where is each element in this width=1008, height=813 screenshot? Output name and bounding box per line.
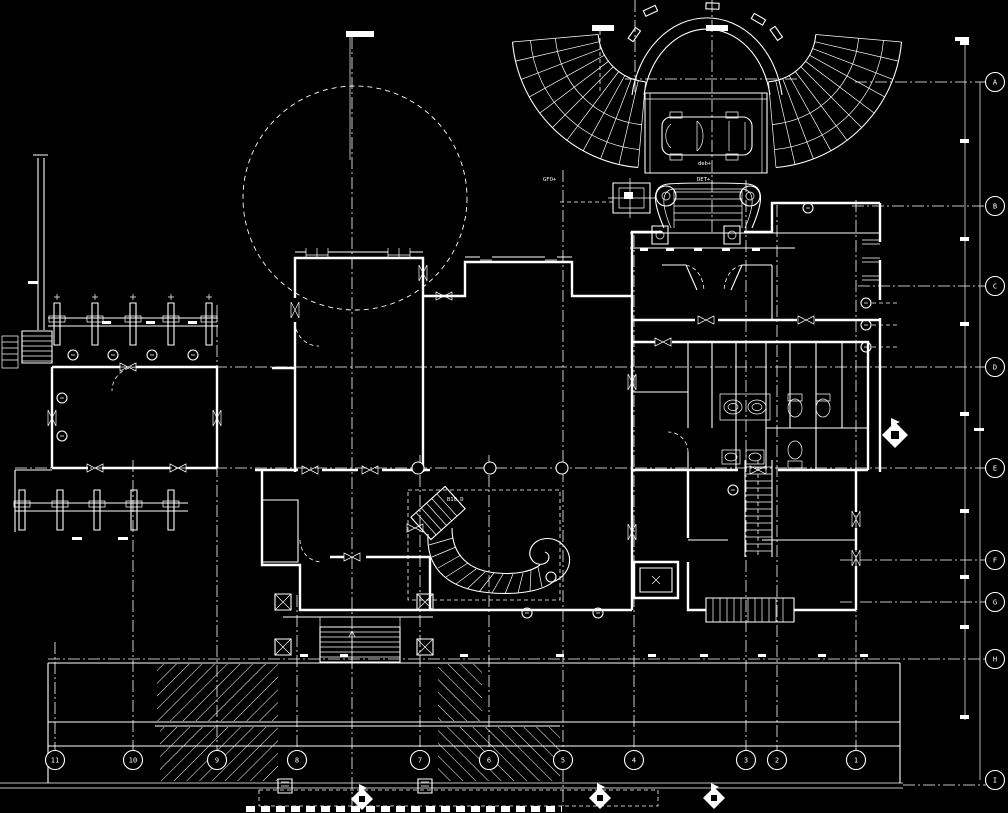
grid-bubble-column-9: 9	[208, 751, 227, 770]
car-body	[662, 117, 752, 155]
grid-bubble-label: D	[993, 364, 997, 372]
cad-floor-plan-canvas: 1110987654321 ABCDEFGHI GFO+deb+DET+B10 …	[0, 0, 1008, 813]
curved-stair	[428, 528, 570, 594]
grid-bubble-label: 1	[854, 757, 858, 765]
grid-bubble-column-11: 11	[46, 751, 65, 770]
south-east-stair	[706, 598, 794, 622]
bath-block-north	[632, 342, 868, 470]
portico-column	[652, 226, 668, 244]
grid-bubble-label: 5	[561, 757, 565, 765]
flag-mark	[706, 25, 728, 31]
south-terrace	[48, 594, 900, 809]
spot-elevation-label: deb+	[698, 161, 712, 167]
grid-bubble-label: C	[993, 283, 997, 291]
grid-bubble-label: 11	[51, 757, 59, 765]
dome-inner-arc	[644, 29, 770, 95]
grid-bubble-column-1: 1	[847, 751, 866, 770]
flag-mark	[346, 31, 374, 37]
pergola-columns-north	[49, 294, 217, 345]
grid-bubble-label: 6	[487, 757, 491, 765]
door-swing	[112, 367, 136, 391]
grid-bubble-label: G	[993, 599, 997, 607]
terrace-hatch	[438, 664, 482, 721]
grid-bubble-column-2: 2	[768, 751, 787, 770]
dome-post	[628, 28, 640, 42]
grid-bubble-label: I	[993, 777, 997, 785]
grid-bubble-row-F: F	[986, 551, 1005, 570]
bath-partitions	[688, 342, 842, 470]
flag-mark	[592, 25, 614, 31]
grid-bubble-row-B: B	[986, 197, 1005, 216]
dome-post	[706, 3, 719, 9]
bay-walls	[423, 262, 632, 296]
tree-canopy	[243, 86, 467, 310]
grid-intersection-circle	[556, 462, 568, 474]
grid-bubble-label: 4	[632, 757, 636, 765]
spot-labels: GFO+deb+DET+B10 D	[447, 161, 712, 503]
sink-basin	[748, 400, 766, 414]
dome-post	[643, 5, 657, 16]
planter-pad	[560, 178, 655, 218]
garden-wall	[33, 155, 48, 330]
grid-lines	[0, 0, 986, 806]
entry-double-door	[662, 265, 772, 290]
grid-intersection-circle	[484, 462, 496, 474]
elevator-shaft	[634, 562, 678, 598]
east-wall-ticks	[862, 240, 880, 280]
section-marker-diamond	[589, 783, 611, 809]
left-pergola	[2, 155, 218, 532]
grid-bubble-row-A: A	[986, 73, 1005, 92]
terrace-hatch	[438, 727, 560, 781]
grid-bubble-label: F	[993, 557, 997, 565]
entry-portico	[630, 183, 795, 248]
straight-flight	[411, 486, 465, 539]
grid-bubble-label: 7	[418, 757, 422, 765]
side-ladder	[2, 336, 18, 368]
dome-post	[751, 13, 765, 25]
keynote-markers	[57, 203, 900, 618]
grid-intersection-circle	[412, 462, 424, 474]
fan-stair-right	[769, 35, 902, 168]
grid-bubble-row-H: H	[986, 650, 1005, 669]
floor-plan-drawing: 1110987654321 ABCDEFGHI GFO+deb+DET+B10 …	[0, 0, 1008, 813]
grid-bubble-row-E: E	[986, 459, 1005, 478]
grid-bubble-label: E	[993, 465, 997, 473]
grid-bubble-column-7: 7	[411, 751, 430, 770]
grid-bubble-row-D: D	[986, 358, 1005, 377]
dome-post	[770, 26, 782, 40]
car-glass-lines	[666, 121, 745, 151]
grid-bubble-column-3: 3	[737, 751, 756, 770]
hatched-closet	[262, 500, 298, 562]
grid-bubble-row-I: I	[986, 771, 1005, 790]
sw-rooms-shell	[255, 470, 430, 610]
toilet	[788, 441, 802, 459]
section-marker-diamond	[882, 418, 908, 448]
grid-bubble-column-6: 6	[480, 751, 499, 770]
opening-symbols	[48, 265, 860, 566]
dimension-marks	[28, 37, 984, 719]
bath-partitions-h	[632, 392, 868, 428]
east-wing-shell	[632, 203, 880, 610]
spot-elevation-label: GFO+	[543, 177, 557, 183]
grid-bubble-row-G: G	[986, 593, 1005, 612]
grid-bubble-label: B	[993, 203, 997, 211]
grid-bubble-row-C: C	[986, 277, 1005, 296]
spot-elevation-label: DET+	[697, 177, 711, 183]
porch-columns	[275, 594, 433, 655]
grid-bubble-label: 9	[215, 757, 219, 765]
volute-rail	[530, 539, 570, 582]
tree-canopy-circle	[243, 86, 467, 310]
spot-elevation-label: B10 D	[447, 497, 464, 503]
terrace-room-walls	[52, 367, 217, 468]
grid-bubble-column-10: 10	[124, 751, 143, 770]
room-nw-shell	[295, 258, 423, 472]
vanity-counter	[720, 394, 770, 420]
section-marker-diamond	[703, 783, 725, 809]
sink-basin	[724, 400, 742, 414]
grid-bubble-label: H	[993, 656, 997, 664]
service-stair	[745, 460, 772, 557]
grid-bubble-label: 10	[129, 757, 137, 765]
grid-bubble-column-4: 4	[625, 751, 644, 770]
grid-bubble-column-5: 5	[554, 751, 573, 770]
driveway-complex	[346, 3, 902, 248]
grid-bubble-label: 8	[295, 757, 299, 765]
portico-column	[724, 226, 740, 244]
grid-bubble-label: 3	[744, 757, 748, 765]
fan-stair-left	[513, 35, 646, 168]
pergola-columns-south	[14, 490, 179, 530]
grid-bubble-label: 2	[775, 757, 779, 765]
grid-bubbles-right: ABCDEFGHI	[986, 73, 1005, 790]
terrace-hatch	[157, 664, 278, 721]
car-symbol	[662, 112, 752, 160]
toilet	[816, 399, 830, 417]
building-walls	[255, 203, 880, 610]
grid-bubble-column-8: 8	[288, 751, 307, 770]
stairs	[408, 460, 794, 622]
